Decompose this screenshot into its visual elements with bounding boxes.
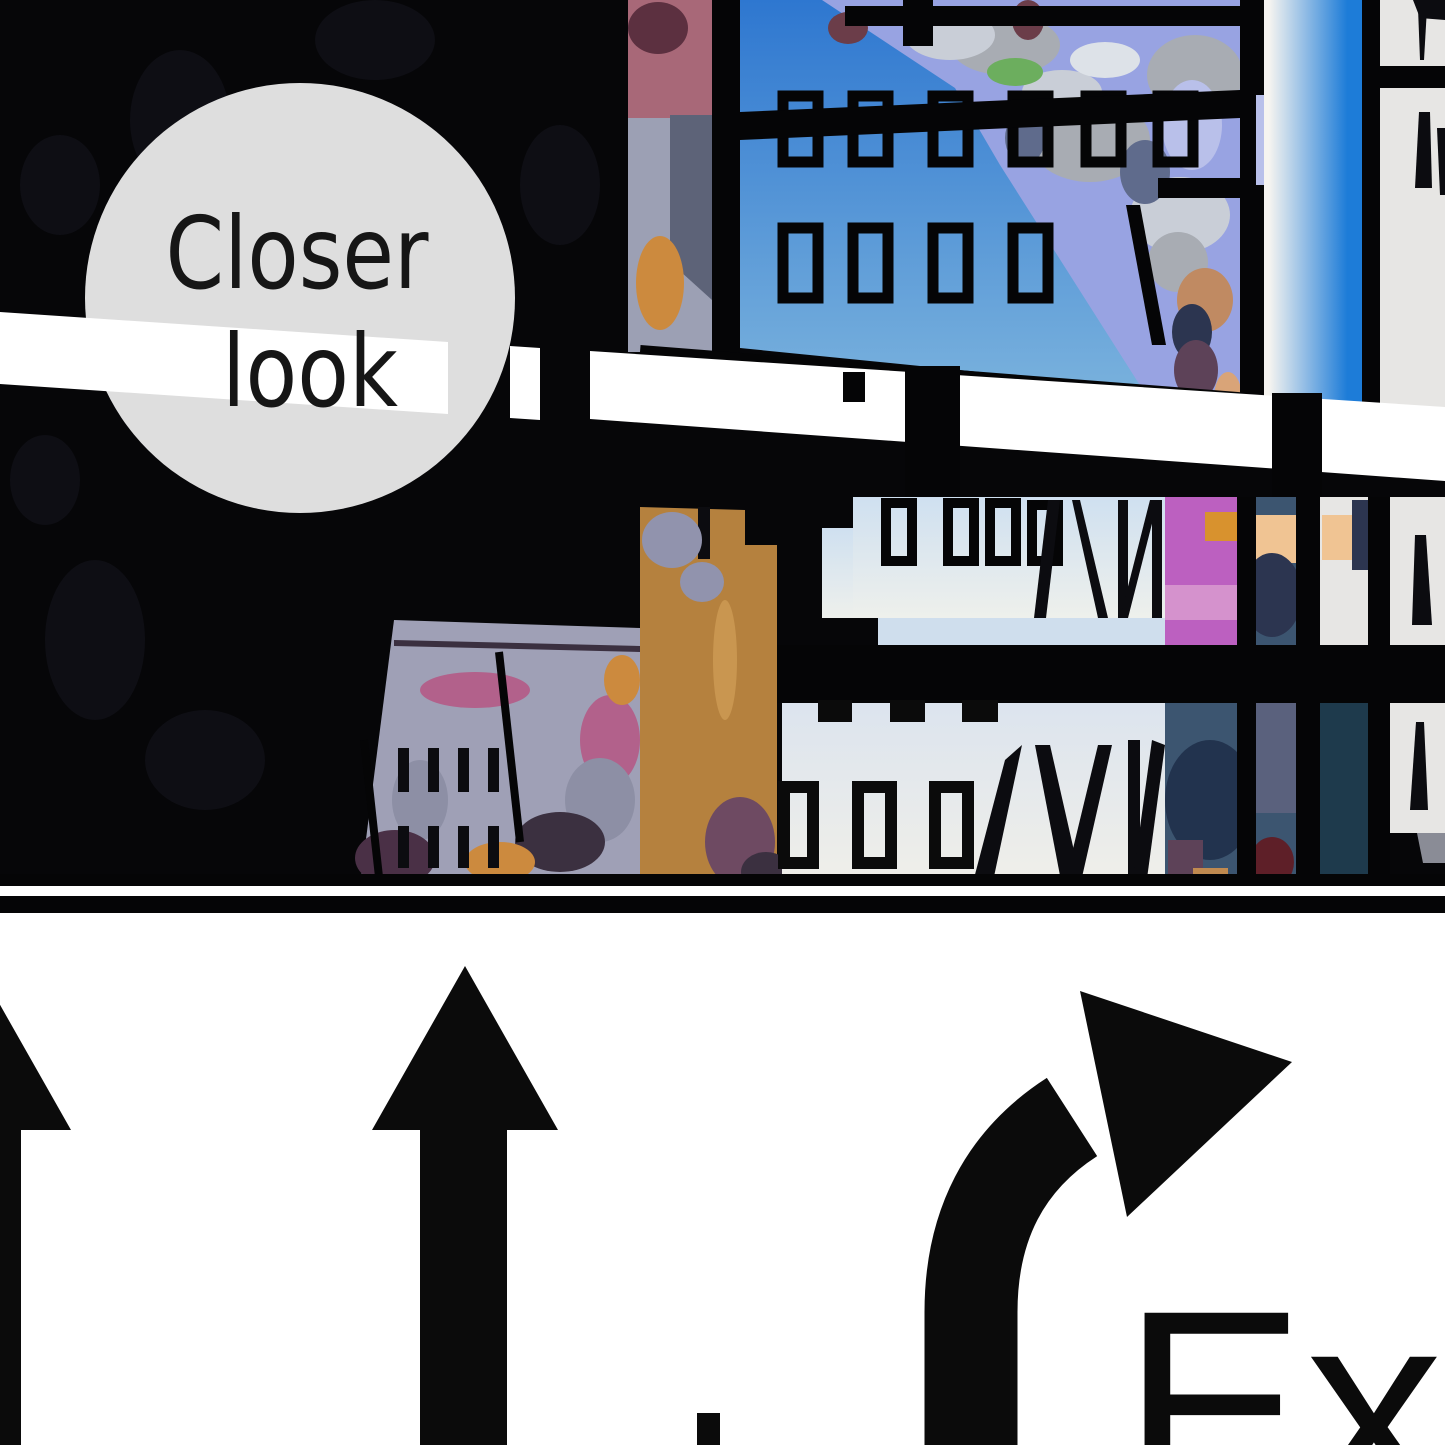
- lower-beam: [777, 645, 1445, 703]
- artwork-canvas: Ex Closer look: [0, 0, 1445, 1445]
- cream-building-lower: [782, 700, 1165, 886]
- badge-text-line1: Closer: [166, 195, 430, 312]
- poster-closeup: Ex Closer look: [0, 0, 1445, 1445]
- cream-building-upper: [822, 497, 1165, 618]
- gantry-stub: [843, 372, 865, 402]
- divider-white-line: [0, 886, 1445, 896]
- window-scene-upper: [628, 0, 1445, 424]
- gradient-tower: [1264, 0, 1362, 412]
- window-mullion: [1362, 0, 1380, 412]
- gantry-post: [905, 366, 960, 506]
- window-mullion: [712, 0, 740, 360]
- tower-sliver: [1256, 95, 1264, 185]
- sign-text-partial: Ex: [1122, 1254, 1443, 1445]
- window-mullion: [1368, 497, 1390, 886]
- white-beam-wedge: [510, 346, 540, 420]
- badge-text-line2: look: [222, 313, 398, 430]
- sign-text-stub: [697, 1413, 720, 1445]
- light-strip: [878, 618, 1165, 645]
- art-bottom-rail: [0, 874, 1445, 886]
- lavender-building: [355, 620, 640, 886]
- right-ice-pane: [1380, 0, 1445, 415]
- left-muted-pane: [628, 0, 712, 352]
- ochre-tower: [640, 507, 791, 892]
- divider-black-bar: [0, 896, 1445, 913]
- window-mullion: [1237, 497, 1256, 886]
- window-mullion: [1296, 497, 1320, 886]
